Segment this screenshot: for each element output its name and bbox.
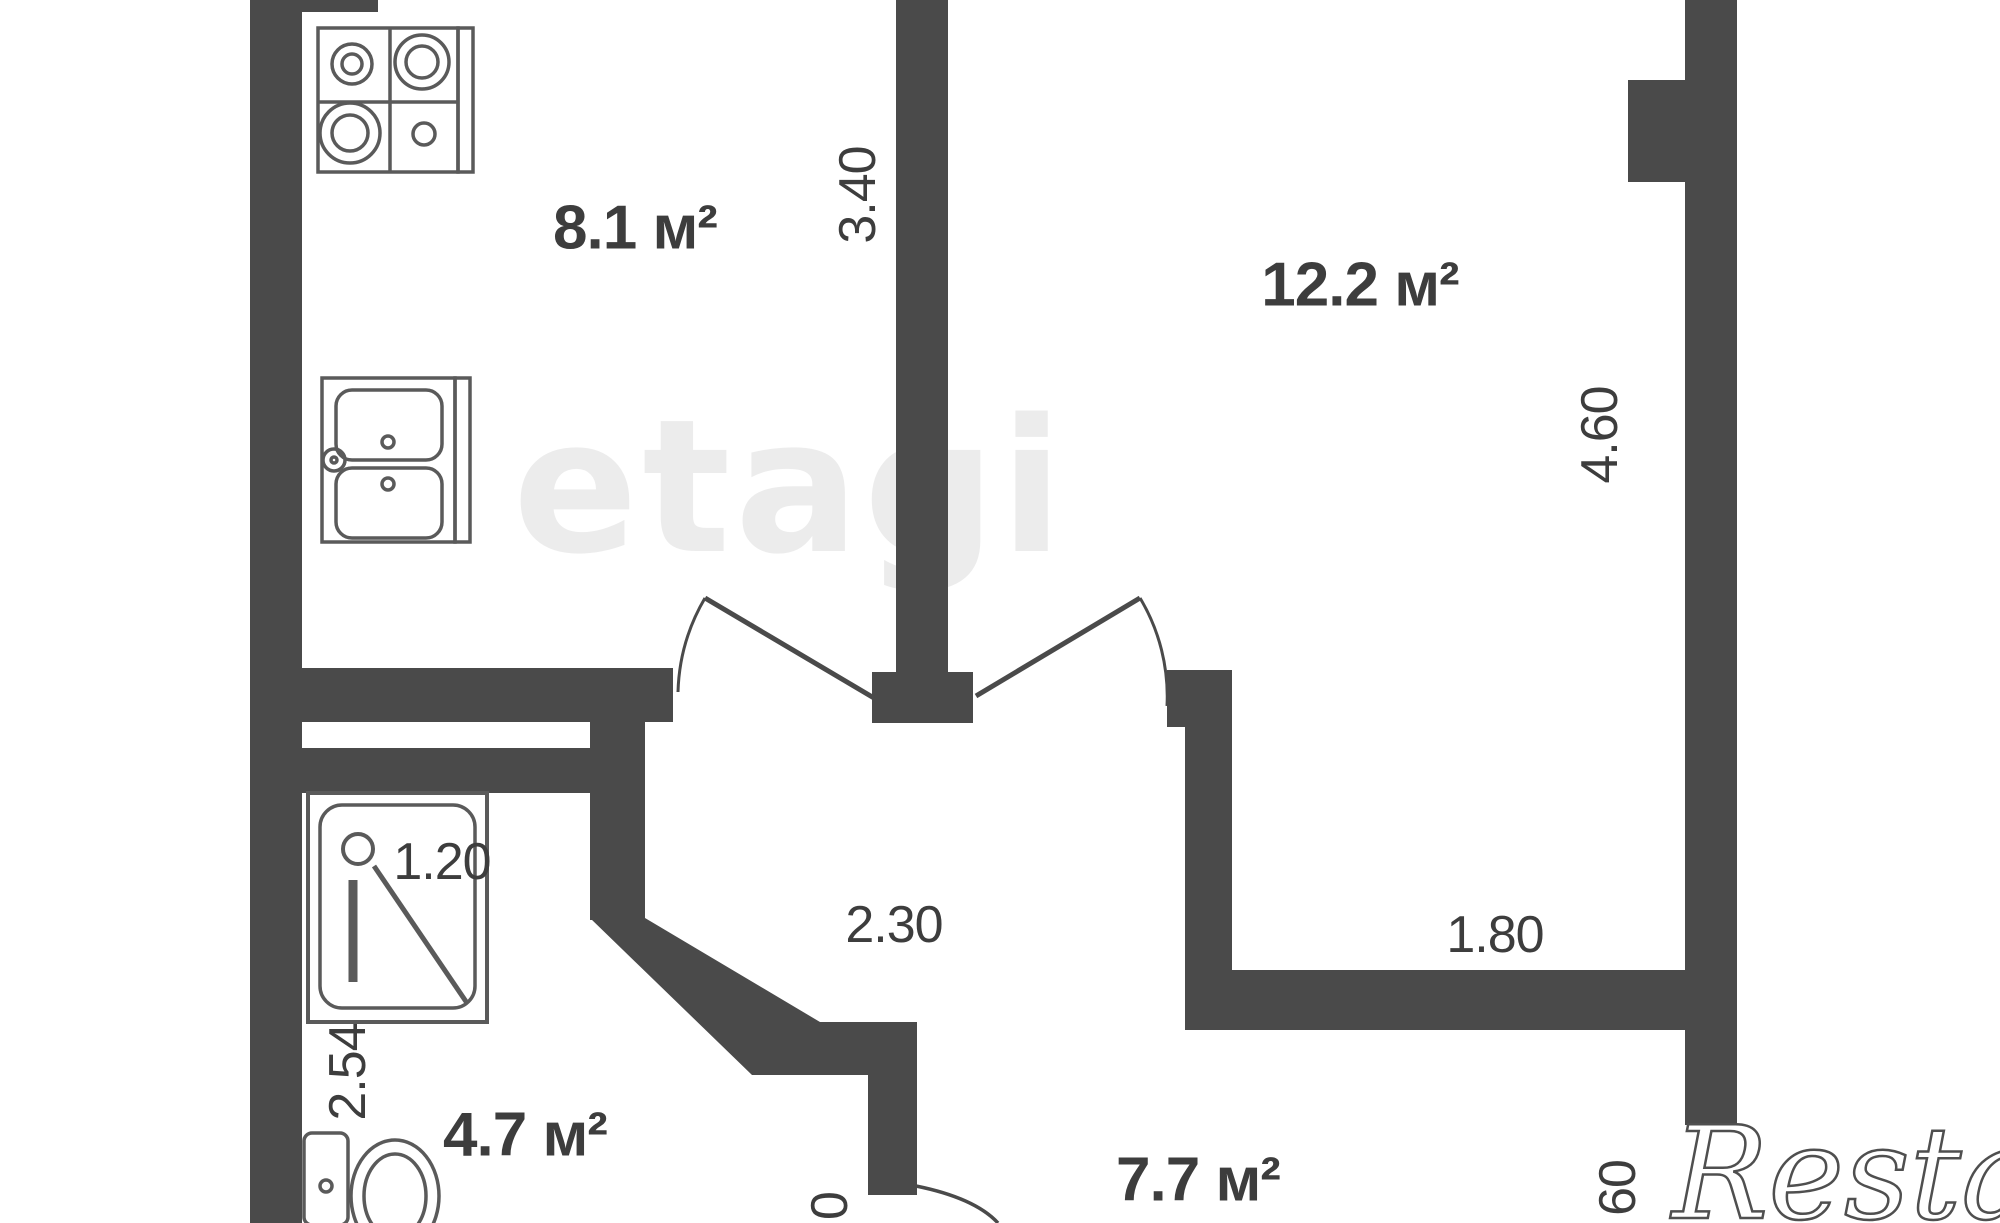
watermark-etagi: etagi bbox=[513, 379, 1068, 595]
dimension-label-kitchen-height: 3.40 bbox=[829, 146, 887, 243]
door-arc-hall bbox=[916, 1186, 998, 1223]
stove-icon bbox=[318, 28, 473, 172]
dimension-label-corridor-width: 2.30 bbox=[845, 896, 942, 954]
wall-central-block bbox=[872, 672, 973, 723]
watermark-restate: Restate bbox=[1670, 1100, 2000, 1223]
shower-icon bbox=[308, 793, 487, 1022]
room-area-label-room: 12.2 м² bbox=[1261, 251, 1459, 320]
wall-top-stub bbox=[302, 0, 378, 12]
wall-right-pier bbox=[1628, 80, 1690, 182]
sink-icon bbox=[322, 378, 470, 542]
dimension-label-niche-width: 1.80 bbox=[1446, 906, 1543, 964]
wall-corridor-left-lower bbox=[590, 918, 917, 1195]
dimension-label-cut-right: 60 bbox=[1589, 1160, 1647, 1216]
room-area-label-kitchen: 8.1 м² bbox=[553, 194, 717, 263]
floor-plan: etagi bbox=[0, 0, 2000, 1223]
door-arc-room bbox=[1140, 598, 1167, 706]
wall-central bbox=[896, 0, 948, 672]
dimension-label-cut-bottom: 0 bbox=[801, 1192, 859, 1220]
door-leaf-kitchen bbox=[705, 598, 874, 698]
room-area-label-hallway: 7.7 м² bbox=[1116, 1146, 1280, 1215]
door-arc-kitchen bbox=[678, 598, 705, 692]
wall-kitchen-bottom bbox=[302, 668, 673, 722]
room-area-label-bathroom: 4.7 м² bbox=[443, 1101, 607, 1170]
wall-left bbox=[250, 0, 302, 1223]
door-leaf-room bbox=[976, 598, 1140, 696]
wall-door-jamb-right bbox=[1167, 670, 1232, 727]
floor-plan-canvas: etagi bbox=[0, 0, 2000, 1223]
toilet-icon bbox=[304, 1133, 439, 1223]
wall-corridor-left bbox=[590, 722, 645, 920]
wall-right bbox=[1685, 0, 1737, 1125]
dimension-label-shower-width: 1.20 bbox=[393, 833, 490, 891]
dimension-label-bathroom-height: 2.54 bbox=[319, 1023, 377, 1120]
wall-room-bottom bbox=[1185, 970, 1685, 1030]
dimension-label-room-height: 4.60 bbox=[1571, 386, 1629, 483]
wall-bathroom-top bbox=[302, 748, 592, 793]
